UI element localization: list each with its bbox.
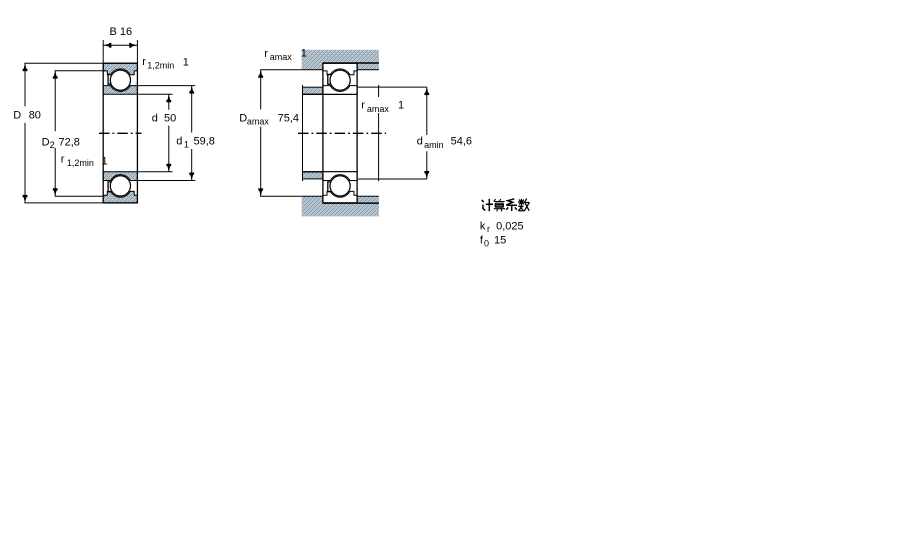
svg-text:0,025: 0,025	[496, 221, 524, 233]
svg-text:amin: amin	[424, 140, 444, 150]
svg-text:k: k	[480, 221, 486, 233]
svg-text:r: r	[361, 100, 365, 112]
svg-text:1: 1	[301, 47, 307, 59]
svg-text:54,6: 54,6	[451, 135, 472, 147]
svg-text:72,8: 72,8	[59, 137, 80, 149]
svg-text:75,4: 75,4	[278, 113, 299, 125]
svg-text:1: 1	[398, 100, 404, 112]
svg-text:0: 0	[484, 239, 489, 249]
svg-text:50: 50	[164, 112, 176, 124]
svg-text:15: 15	[494, 235, 506, 247]
svg-text:r: r	[61, 153, 65, 165]
svg-text:amax: amax	[367, 104, 390, 114]
svg-text:B 16: B 16	[110, 26, 133, 38]
svg-text:r: r	[487, 224, 490, 234]
svg-text:amax: amax	[270, 52, 293, 62]
svg-text:1,2min: 1,2min	[67, 158, 94, 168]
svg-text:D: D	[42, 137, 50, 149]
svg-text:1: 1	[184, 140, 189, 150]
svg-text:d: d	[176, 136, 182, 148]
svg-text:1,2min: 1,2min	[147, 60, 174, 70]
svg-text:1: 1	[183, 56, 189, 68]
svg-text:1: 1	[102, 155, 108, 167]
svg-text:2: 2	[50, 140, 55, 150]
svg-text:r: r	[142, 56, 146, 68]
svg-text:d: d	[417, 135, 423, 147]
svg-text:r: r	[264, 48, 268, 60]
svg-text:59,8: 59,8	[194, 136, 215, 148]
svg-text:d: d	[152, 112, 158, 124]
svg-text:amax: amax	[247, 116, 270, 126]
svg-text:D: D	[13, 109, 21, 121]
svg-text:80: 80	[29, 109, 41, 121]
